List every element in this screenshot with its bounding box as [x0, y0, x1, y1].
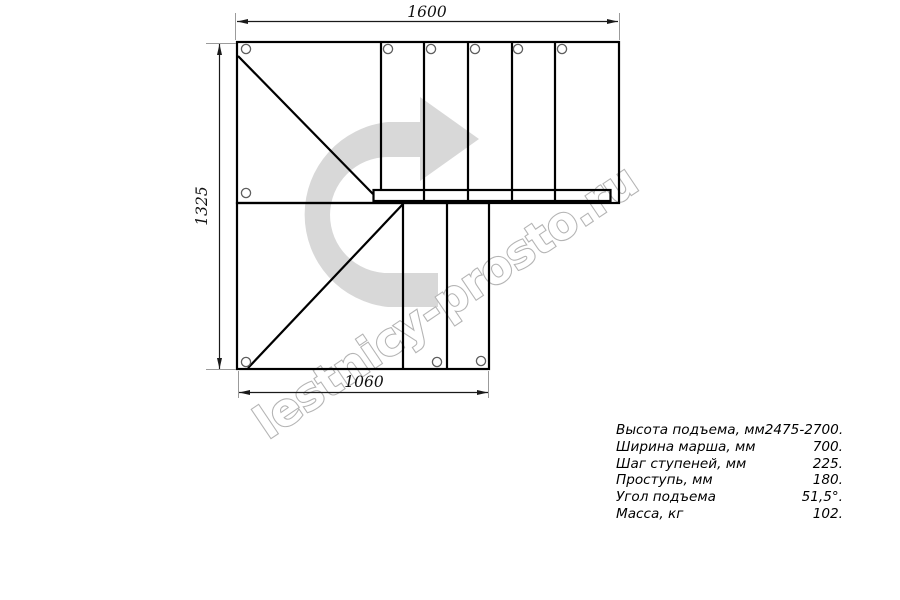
dimension-left: 1325	[193, 44, 236, 370]
spec-value: 700.	[813, 439, 843, 456]
spec-value: 180.	[813, 472, 843, 489]
spec-value: 102.	[813, 506, 843, 523]
dimension-arrow	[239, 390, 250, 395]
dimension-left-label: 1325	[193, 186, 211, 225]
dimension-arrow	[237, 19, 248, 24]
spec-label: Масса, кг	[616, 506, 683, 523]
mounting-hole	[513, 44, 522, 53]
spec-row: Масса, кг 102.	[616, 506, 843, 523]
mounting-hole	[426, 44, 435, 53]
spec-label: Ширина марша, мм	[616, 439, 756, 456]
spec-value: 225.	[813, 456, 843, 473]
dimension-top: 1600	[236, 3, 620, 40]
watermark-text: lestnicy-prosto.ru	[245, 154, 648, 450]
spec-row: Ширина марша, мм 700.	[616, 439, 843, 456]
dimension-top-label: 1600	[407, 3, 447, 21]
dimension-arrow	[217, 44, 222, 55]
watermark: lestnicy-prosto.ru	[245, 97, 648, 449]
dimension-arrow	[217, 358, 222, 369]
dimension-arrow	[607, 19, 618, 24]
mounting-hole	[241, 357, 250, 366]
mounting-hole	[476, 356, 485, 365]
mounting-hole	[383, 44, 392, 53]
spec-row: Высота подъема, мм 2475-2700.	[616, 422, 843, 439]
mounting-hole	[241, 188, 250, 197]
mounting-hole	[557, 44, 566, 53]
mounting-hole	[432, 357, 441, 366]
spec-label: Угол подъема	[616, 489, 716, 506]
mounting-hole	[470, 44, 479, 53]
spec-label: Шаг ступеней, мм	[616, 456, 746, 473]
spec-row: Проступь, мм 180.	[616, 472, 843, 489]
dimension-arrow	[477, 390, 488, 395]
spec-row: Шаг ступеней, мм 225.	[616, 456, 843, 473]
spec-value: 51,5°.	[802, 489, 843, 506]
spec-label: Высота подъема, мм	[616, 422, 765, 439]
upper-flight-diagonal	[238, 56, 373, 194]
dimension-bottom-label: 1060	[344, 373, 384, 391]
spec-label: Проступь, мм	[616, 472, 713, 489]
spec-row: Угол подъема 51,5°.	[616, 489, 843, 506]
staircase-drawing-page: lestnicy-prosto.ru	[0, 0, 900, 600]
mounting-hole	[241, 44, 250, 53]
spec-value: 2475-2700.	[765, 422, 843, 439]
spec-table: Высота подъема, мм 2475-2700. Ширина мар…	[616, 422, 843, 523]
